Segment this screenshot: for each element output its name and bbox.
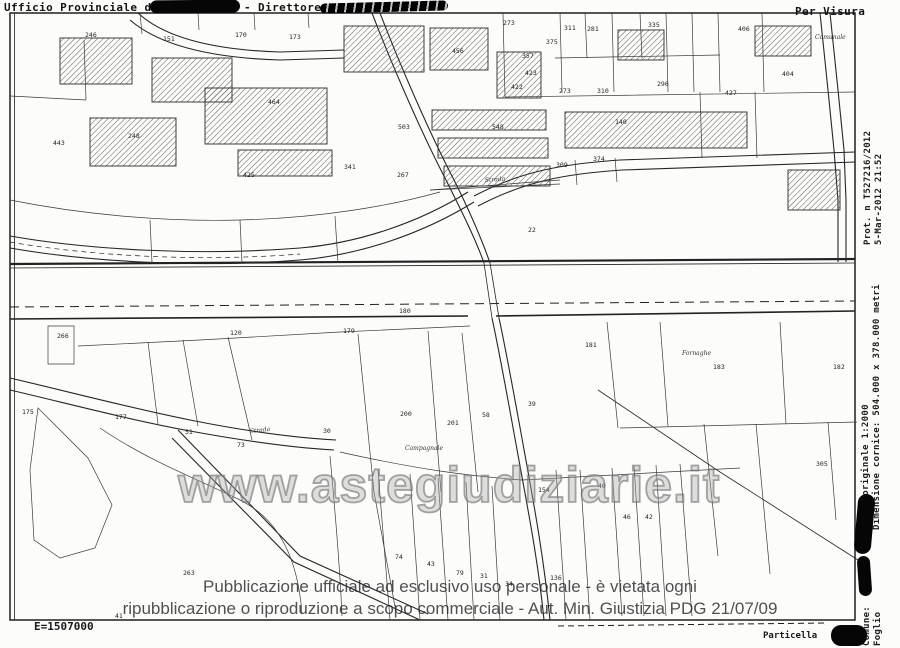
parcel-label: 374 (593, 155, 605, 163)
parcel-label: 151 (163, 35, 175, 43)
parcel-label: 309 (556, 161, 568, 169)
parcel-label: 422 (511, 83, 523, 91)
parcel-label: 548 (492, 123, 504, 131)
header-director-label: - Direttore (244, 1, 321, 14)
parcel-label: 267 (397, 171, 409, 179)
parcel-label: 58 (482, 411, 490, 419)
parcel-label: 341 (344, 163, 356, 171)
parcel-label: 73 (237, 441, 245, 449)
parcel-label: 281 (587, 25, 599, 33)
parcel-label: 273 (503, 19, 515, 27)
parcel-label: 43 (427, 560, 435, 568)
parcel-label: 179 (343, 327, 355, 335)
parcel-label: 46 (623, 513, 631, 521)
protocol-datetime: 5-Mar-2012 21:52 (874, 131, 885, 245)
parcel-label: 42 (645, 513, 653, 521)
parcel-label: 30 (323, 427, 331, 435)
road-number-label: 180 (399, 307, 411, 315)
street-label: Comunale (815, 34, 846, 41)
parcel-label: 305 (816, 460, 828, 468)
redaction-foglio-value (857, 556, 873, 597)
parcel-label: 120 (230, 329, 242, 337)
parcel-label: 310 (597, 87, 609, 95)
parcel-label: 404 (782, 70, 794, 78)
watermark-text: www.astegiudiziarie.it (178, 456, 720, 514)
parcel-label: 182 (833, 363, 845, 371)
parcel-label: 425 (243, 171, 255, 179)
parcel-label: 201 (447, 419, 459, 427)
street-label: Strada (485, 176, 506, 184)
parcel-labels: 2461511701734432484644253412675034562733… (22, 19, 846, 620)
parcel-label: 423 (525, 69, 537, 77)
parcel-label: 311 (564, 24, 576, 32)
redaction-particella-value (831, 625, 867, 646)
parcel-label: 200 (400, 410, 412, 418)
parcel-label: 357 (522, 52, 534, 60)
parcel-label: 427 (725, 89, 737, 97)
parcel-label: 296 (657, 80, 669, 88)
map-frame (10, 13, 855, 626)
parcel-label: 183 (713, 363, 725, 371)
cadastral-map-page: 2461511701734432484644253412675034562733… (0, 0, 900, 648)
street-label: Campagnale (405, 445, 443, 452)
map-linework: 2461511701734432484644253412675034562733… (0, 0, 900, 648)
parcel-label: 375 (546, 38, 558, 46)
frame-size: Dimensione cornice: 504.000 x 378.000 me… (872, 284, 883, 530)
redaction-office-name (150, 0, 240, 13)
parcel-label: 170 (235, 31, 247, 39)
parcel-label: 177 (115, 413, 127, 421)
parcel-label: 39 (528, 400, 536, 408)
parcel-label: 464 (268, 98, 280, 106)
parcel-label: 248 (128, 132, 140, 140)
foglio-label: Foglio (873, 606, 884, 646)
road-band (10, 259, 855, 319)
parcel-label: 263 (183, 569, 195, 577)
parcel-label: 266 (57, 332, 69, 340)
parcel-label: 173 (289, 33, 301, 41)
parcel-label: 335 (648, 21, 660, 29)
header-office-label: Ufficio Provinciale di (4, 1, 159, 14)
street-label: Fornaghe (681, 350, 711, 357)
particella-label: Particella (763, 631, 817, 641)
parcel-label: 74 (395, 553, 403, 561)
protocol-block: Prot. n T527216/2012 5-Mar-2012 21:52 (863, 131, 885, 245)
buildings (60, 26, 840, 210)
parcel-label: 456 (452, 47, 464, 55)
header-per-visura-label: Per Visura (795, 5, 865, 18)
disclaimer-line-1: Pubblicazione ufficiale ad esclusivo uso… (0, 577, 900, 597)
parcel-label: 79 (456, 569, 464, 577)
parcel-label: 406 (738, 25, 750, 33)
parcel-label: 51 (185, 428, 193, 436)
parcel-label: 175 (22, 408, 34, 416)
parcel-label: 273 (559, 87, 571, 95)
parcel-label: 22 (528, 226, 536, 234)
parcel-label: 246 (85, 31, 97, 39)
parcel-label: 140 (615, 118, 627, 126)
parcel-label: 181 (585, 341, 597, 349)
parcel-label: 503 (398, 123, 410, 131)
east-coordinate-label: E=1507000 (34, 620, 94, 633)
disclaimer-line-2: ripubblicazione o riproduzione a scopo c… (0, 599, 900, 619)
parcel-label: 443 (53, 139, 65, 147)
protocol-number: Prot. n T527216/2012 (863, 131, 874, 245)
